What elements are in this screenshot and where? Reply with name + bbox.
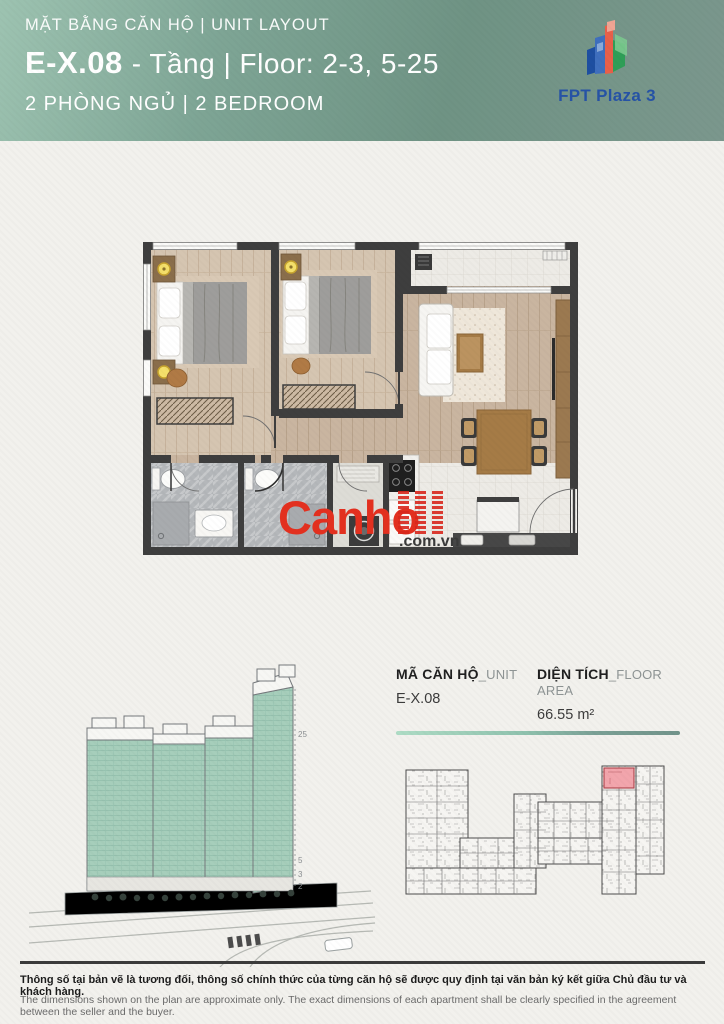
header-eyebrow: MẶT BẰNG CĂN HỘ | UNIT LAYOUT — [25, 16, 439, 35]
watermark: Canho .com.vn — [278, 492, 462, 554]
key-plan — [398, 760, 678, 902]
key-plan-svg — [398, 760, 678, 902]
retail-band — [87, 877, 293, 891]
floor-label-5: 5 — [298, 856, 303, 865]
wardrobe-1 — [157, 398, 233, 424]
dining-table — [477, 410, 531, 474]
header-banner: MẶT BẰNG CĂN HỘ | UNIT LAYOUT E-X.08 - T… — [0, 0, 724, 141]
ac-unit — [415, 254, 432, 270]
building-svg: 25 5 3 2 — [25, 645, 375, 967]
area-value: 66.55 m² — [537, 707, 680, 723]
unit-info-block: MÃ CĂN HỘ_UNIT E-X.08 DIỆN TÍCH_FLOOR AR… — [396, 666, 680, 735]
floor-label-3: 3 — [298, 870, 303, 879]
bedroom-subtitle: 2 PHÒNG NGỦ | 2 BEDROOM — [25, 93, 439, 116]
watermark-suffix: .com.vn — [399, 533, 459, 551]
towers — [87, 665, 295, 893]
tv-cabinet — [556, 300, 572, 478]
cooktop — [389, 460, 415, 492]
floor-label-25: 25 — [298, 730, 307, 739]
project-logo-text: FPT Plaza 3 — [542, 86, 672, 106]
info-divider — [396, 731, 680, 735]
project-logo: FPT Plaza 3 — [542, 20, 672, 106]
kitchen-island — [477, 500, 519, 532]
toilet-2 — [255, 470, 279, 489]
keyplan-highlight-unit — [604, 768, 634, 788]
footer-divider — [20, 961, 705, 964]
floor-labels: 25 5 3 2 — [298, 730, 307, 891]
floor-range: - Tầng | Floor: 2-3, 5-25 — [132, 48, 439, 80]
disclaimer-english: The dimensions shown on the plan are app… — [20, 994, 710, 1018]
building-elevation: 25 5 3 2 — [25, 645, 375, 967]
unit-layout-page: MẶT BẰNG CĂN HỘ | UNIT LAYOUT E-X.08 - T… — [0, 0, 724, 1024]
unit-value: E-X.08 — [396, 691, 537, 707]
car — [324, 937, 352, 951]
page-title: E-X.08 - Tầng | Floor: 2-3, 5-25 — [25, 45, 439, 81]
floor-label-2: 2 — [298, 882, 303, 891]
toilet-1 — [161, 470, 185, 489]
header-text-block: MẶT BẰNG CĂN HỘ | UNIT LAYOUT E-X.08 - T… — [25, 16, 439, 116]
wardrobe-2 — [283, 385, 355, 409]
area-label: DIỆN TÍCH_FLOOR AREA — [537, 666, 680, 698]
fpt-plaza-logo-icon — [581, 20, 633, 78]
unit-label: MÃ CĂN HỘ_UNIT — [396, 666, 537, 682]
watermark-stamp — [398, 490, 443, 534]
unit-code: E-X.08 — [25, 45, 123, 81]
